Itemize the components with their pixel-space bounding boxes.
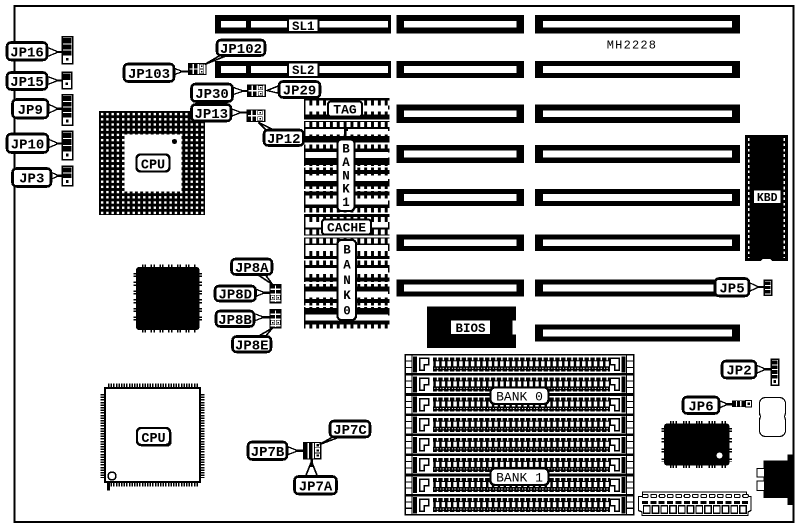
svg-text:JP13: JP13 <box>194 107 228 123</box>
svg-text:JP6: JP6 <box>688 399 713 415</box>
svg-text:JP7B: JP7B <box>251 445 285 461</box>
svg-text:BANK 1: BANK 1 <box>496 471 543 486</box>
svg-text:JP10: JP10 <box>11 137 45 153</box>
svg-text:SL1: SL1 <box>292 20 315 34</box>
svg-text:JP8E: JP8E <box>235 338 269 354</box>
svg-text:SL2: SL2 <box>292 64 315 78</box>
svg-text:JP5: JP5 <box>719 281 744 297</box>
svg-text:CACHE: CACHE <box>327 221 366 236</box>
svg-text:JP30: JP30 <box>195 87 229 103</box>
svg-text:BIOS: BIOS <box>455 322 486 336</box>
svg-text:CPU: CPU <box>141 158 165 173</box>
svg-text:B: B <box>343 244 351 258</box>
svg-text:BANK 0: BANK 0 <box>496 390 543 405</box>
svg-text:A: A <box>343 259 351 273</box>
svg-text:JP102: JP102 <box>220 42 262 58</box>
svg-text:JP3: JP3 <box>19 172 44 188</box>
svg-text:JP9: JP9 <box>18 103 43 119</box>
svg-text:TAG: TAG <box>333 103 357 118</box>
svg-text:JP8B: JP8B <box>218 313 252 329</box>
svg-text:N: N <box>343 274 351 288</box>
svg-text:JP7C: JP7C <box>333 423 367 439</box>
svg-text:KBD: KBD <box>757 192 778 205</box>
svg-text:JP15: JP15 <box>10 75 44 91</box>
svg-text:K: K <box>343 289 351 303</box>
svg-text:MH2228: MH2228 <box>607 39 657 53</box>
svg-text:JP2: JP2 <box>726 364 751 380</box>
svg-text:JP8A: JP8A <box>235 261 269 277</box>
svg-text:CPU: CPU <box>141 432 165 447</box>
svg-text:JP12: JP12 <box>267 132 301 148</box>
svg-text:B: B <box>342 143 350 157</box>
svg-text:JP16: JP16 <box>10 45 44 61</box>
svg-text:N: N <box>342 169 350 183</box>
svg-text:JP29: JP29 <box>283 84 317 100</box>
svg-text:JP8D: JP8D <box>218 288 252 304</box>
svg-text:JP103: JP103 <box>128 67 170 83</box>
svg-text:JP7A: JP7A <box>299 479 333 495</box>
svg-text:A: A <box>342 156 350 170</box>
svg-text:0: 0 <box>343 304 351 318</box>
svg-text:K: K <box>342 183 350 197</box>
svg-text:1: 1 <box>342 196 350 210</box>
